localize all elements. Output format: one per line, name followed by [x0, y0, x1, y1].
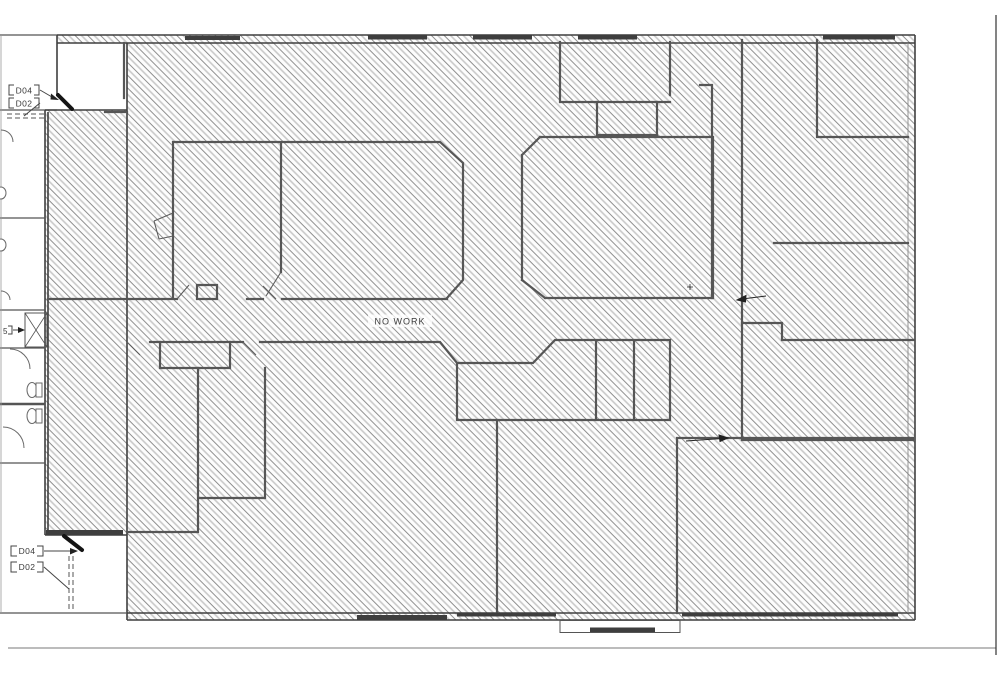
door-leaf-lower-left	[64, 536, 82, 550]
door-tag-d02-lower: D02	[19, 562, 36, 572]
partial-keynote: 5	[3, 326, 25, 336]
door-tag-d02-upper: D02	[16, 99, 33, 109]
restroom-fixtures	[0, 187, 42, 424]
floor-plan-canvas: D04 D02 D04 D02 5 NO WORK	[0, 0, 1000, 694]
no-work-text: NO WORK	[375, 317, 426, 327]
door-leaf-upper-left	[58, 95, 72, 109]
door-tag-d04-upper: D04	[16, 86, 33, 96]
keynote-text: 5	[3, 327, 8, 336]
shaft-chase	[25, 313, 47, 347]
entry-vestibule	[560, 621, 680, 633]
lower-door-tags: D04 D02	[11, 546, 78, 589]
door-tag-d04-lower: D04	[19, 546, 36, 556]
no-work-label: NO WORK	[368, 315, 432, 328]
floor-plan-sheet: D04 D02 D04 D02 5 NO WORK	[0, 0, 1000, 694]
door-arcs	[1, 130, 30, 448]
